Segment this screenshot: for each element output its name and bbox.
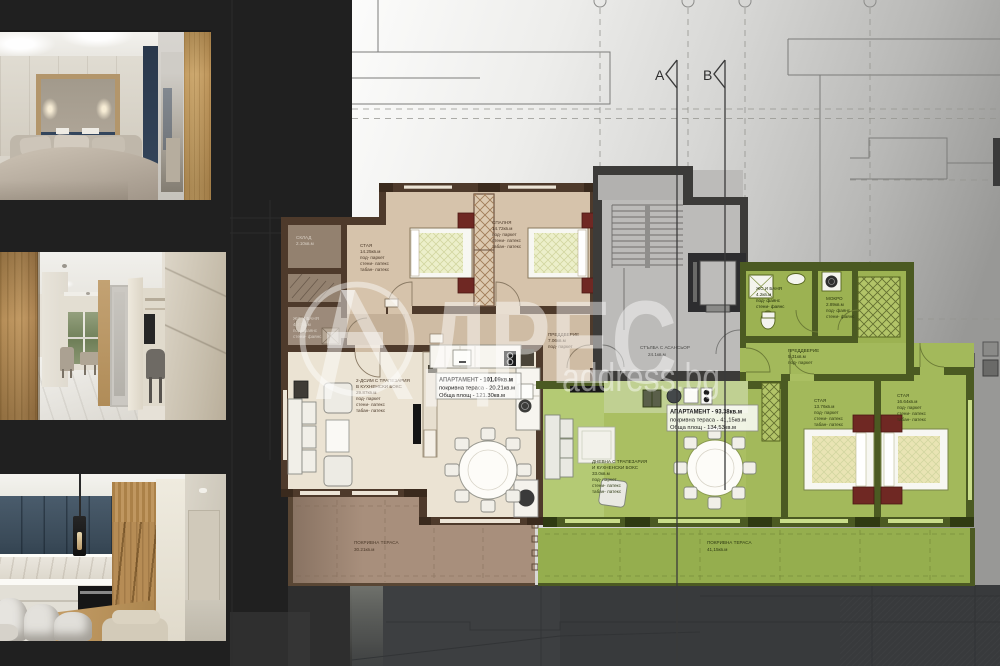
svg-text:под- паркет: под- паркет: [788, 360, 813, 365]
svg-text:стени- фаянс: стени- фаянс: [756, 304, 785, 309]
svg-text:30.21кв.м: 30.21кв.м: [354, 547, 374, 552]
svg-text:СТАЯ: СТАЯ: [814, 398, 826, 403]
svg-text:5.31кв.м: 5.31кв.м: [788, 354, 806, 359]
svg-text:стени- фаянс: стени- фаянс: [826, 314, 855, 319]
svg-text:АПАРТАМЕНТ - 93.38кв.м: АПАРТАМЕНТ - 93.38кв.м: [670, 409, 742, 416]
svg-text:2.89кв.м: 2.89кв.м: [826, 302, 844, 307]
svg-text:СПАЛНЯ: СПАЛНЯ: [492, 220, 511, 225]
svg-text:41,15кв.м: 41,15кв.м: [707, 547, 727, 552]
svg-text:под- фаянс: под- фаянс: [756, 298, 781, 303]
svg-text:табан- латекс: табан- латекс: [592, 489, 622, 494]
svg-text:под- фаянс: под- фаянс: [826, 308, 851, 313]
svg-text:табан- латекс: табан- латекс: [356, 408, 386, 413]
svg-text:14.72кв.м: 14.72кв.м: [492, 226, 512, 231]
svg-text:СТАЯ: СТАЯ: [897, 393, 909, 398]
svg-text:2.10кв.м: 2.10кв.м: [296, 241, 314, 246]
svg-text:стени- латекс: стени- латекс: [360, 261, 390, 266]
svg-text:И КУХНЕНСКИ БОКС: И КУХНЕНСКИ БОКС: [592, 465, 639, 470]
svg-text:табан- латекс: табан- латекс: [897, 417, 927, 422]
svg-text:стени- латекс: стени- латекс: [814, 416, 844, 421]
svg-text:под- паркет: под- паркет: [360, 255, 385, 260]
svg-text:13.76кв.м: 13.76кв.м: [814, 404, 834, 409]
svg-text:под- паркет: под- паркет: [897, 405, 922, 410]
svg-text:под- паркет: под- паркет: [592, 477, 617, 482]
svg-text:стени- латекс: стени- латекс: [897, 411, 927, 416]
svg-text:4.2кв.м: 4.2кв.м: [756, 292, 771, 297]
svg-text:табан- латекс: табан- латекс: [492, 244, 522, 249]
svg-text:ЖС И БАНЯ: ЖС И БАНЯ: [756, 286, 782, 291]
svg-text:СТАЯ: СТАЯ: [360, 243, 372, 248]
svg-text:под- паркет: под- паркет: [356, 396, 381, 401]
svg-text:ПРЕДДВЕРИЕ: ПРЕДДВЕРИЕ: [788, 348, 819, 353]
svg-text:16.64кв.м: 16.64кв.м: [897, 399, 917, 404]
svg-text:стени- латекс: стени- латекс: [592, 483, 622, 488]
svg-text:стени- фаянс: стени- фаянс: [293, 334, 322, 339]
svg-text:СКЛАД: СКЛАД: [296, 235, 312, 240]
svg-text:МОКРО: МОКРО: [826, 296, 843, 301]
svg-text:стени- латекс: стени- латекс: [492, 238, 522, 243]
svg-text:табан- латекс: табан- латекс: [360, 267, 390, 272]
svg-text:под- паркет: под- паркет: [814, 410, 839, 415]
svg-text:ПОКРИВНА ТЕРАСА: ПОКРИВНА ТЕРАСА: [707, 540, 752, 545]
svg-text:под- паркет: под- паркет: [492, 232, 517, 237]
svg-text:A: A: [655, 67, 665, 83]
svg-text:табан- латекс: табан- латекс: [814, 422, 844, 427]
svg-text:B: B: [703, 67, 712, 83]
svg-text:стени- латекс: стени- латекс: [356, 402, 386, 407]
svg-text:14.25кв.м: 14.25кв.м: [360, 249, 380, 254]
svg-text:Обща площ - 134,53кв.м: Обща площ - 134,53кв.м: [670, 425, 736, 431]
svg-text:ПОКРИВНА ТЕРАСА: ПОКРИВНА ТЕРАСА: [354, 540, 399, 545]
svg-text:покривна тераса - 41,15кв.м: покривна тераса - 41,15кв.м: [670, 418, 746, 424]
svg-text:33.0кв.м: 33.0кв.м: [592, 471, 610, 476]
svg-text:ДНЕВНА С ТРАПЕЗАРИЯ: ДНЕВНА С ТРАПЕЗАРИЯ: [592, 459, 647, 464]
svg-text:address.bg: address.bg: [562, 356, 720, 400]
